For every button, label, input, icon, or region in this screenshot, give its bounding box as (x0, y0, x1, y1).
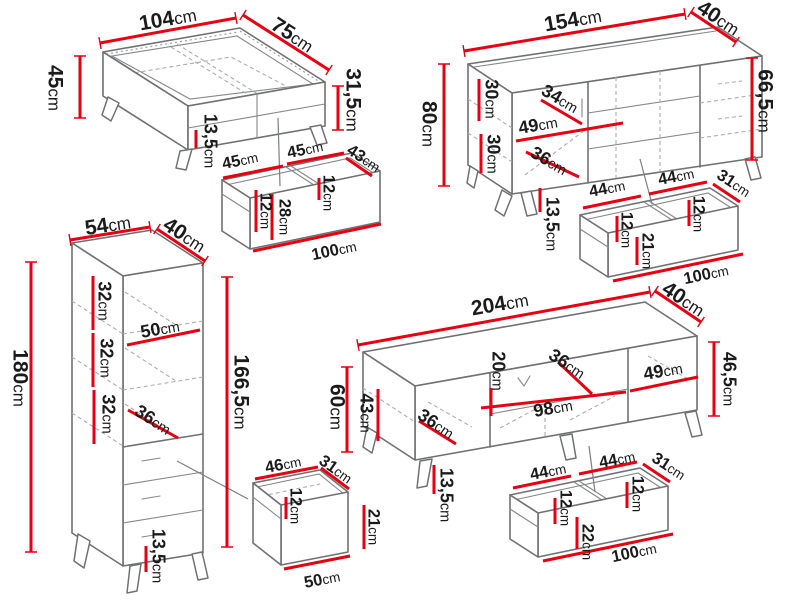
dimension-label: 12cm (319, 175, 337, 211)
dimension-label: 12cm (256, 193, 274, 229)
diagram-canvas: 104cm75cm45cm31,5cm13,5cm45cm45cm43cm12c… (0, 0, 800, 600)
dimension-label: 100cm (610, 539, 658, 566)
drawer-left-face (222, 180, 250, 249)
sideboard-leg (495, 190, 512, 216)
dimension-label: 46cm (264, 452, 303, 477)
dimension-label: 180cm (8, 349, 31, 407)
dimension-label: 13,5cm (542, 197, 562, 251)
dimension-label: 44cm (598, 447, 637, 472)
dimension-label: 12cm (689, 196, 707, 232)
dimension-label: 13,5cm (200, 114, 220, 168)
cabinet-leg (192, 552, 208, 580)
dimension-label: 21cm (364, 509, 382, 545)
cabinet-leg (127, 564, 141, 593)
drawer-left-face (580, 215, 608, 277)
dimension-label: 22cm (578, 524, 596, 560)
dimension-label: 12cm (286, 488, 304, 524)
dimension-label: 21cm (638, 233, 656, 269)
dimension-label: 66,5cm (753, 69, 776, 133)
dimension-label: 154cm (542, 4, 603, 37)
dimension-label: 12cm (617, 212, 635, 248)
dimension-label: 166,5cm (229, 354, 252, 429)
leader-line (589, 446, 595, 492)
dimension-label: 31cm (649, 449, 689, 484)
sideboard-leg (467, 166, 478, 188)
drawer-left-face (253, 483, 281, 565)
dimension-label: 13,5cm (436, 468, 456, 522)
sideboard-leg (521, 191, 537, 216)
dimension-label: 12cm (556, 490, 574, 526)
furniture-dimensions-diagram: 104cm75cm45cm31,5cm13,5cm45cm45cm43cm12c… (0, 0, 800, 600)
dimension-label: 31,5cm (341, 68, 364, 132)
drawer-left-face (510, 495, 538, 557)
dimension-label: 80cm (417, 101, 440, 147)
dimension-label: 104cm (137, 3, 198, 36)
dimension-label: 28cm (275, 199, 293, 235)
dimension-label: 46,5cm (719, 352, 739, 406)
dimension-label: 45cm (43, 65, 66, 111)
coffee-table-leg (176, 149, 192, 170)
dimension-label: 45cm (220, 148, 259, 173)
tv-stand-leg (560, 434, 576, 460)
dimension-label: 100cm (310, 237, 358, 264)
tv-stand-leg (417, 459, 432, 488)
dimension-label: 44cm (529, 459, 568, 484)
dimension-label: 60cm (325, 384, 348, 430)
dimension-label: 13,5cm (148, 529, 168, 583)
tv-stand-leg (685, 411, 702, 437)
dimension-label: 50cm (303, 567, 342, 592)
dimension-label: 12cm (628, 476, 646, 512)
cabinet-leg (74, 534, 90, 568)
sideboard-drawers (580, 188, 738, 277)
